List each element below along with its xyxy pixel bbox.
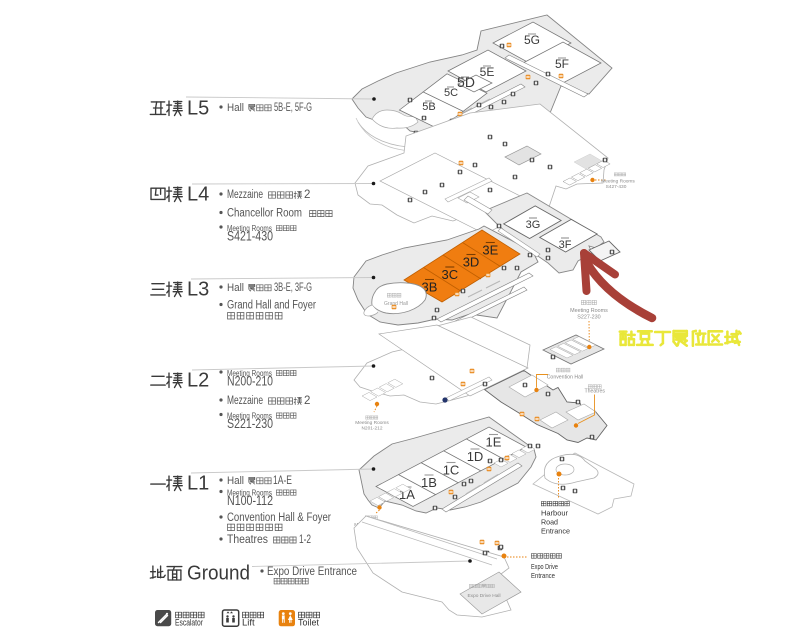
svg-text:5G: 5G bbox=[524, 33, 540, 47]
svg-text:N201-212: N201-212 bbox=[361, 426, 382, 432]
svg-text:2: 2 bbox=[304, 395, 310, 407]
svg-text:Theatres: Theatres bbox=[584, 389, 605, 395]
svg-text:Toilet: Toilet bbox=[298, 618, 319, 629]
svg-text:1C: 1C bbox=[443, 463, 460, 478]
svg-text:5B: 5B bbox=[422, 101, 435, 113]
svg-text:L5: L5 bbox=[187, 98, 209, 120]
svg-text:Road: Road bbox=[541, 518, 558, 527]
svg-text:3G: 3G bbox=[526, 219, 541, 231]
svg-text:Meeting Rooms: Meeting Rooms bbox=[355, 420, 389, 426]
svg-text:5C: 5C bbox=[444, 87, 458, 99]
svg-text:3E: 3E bbox=[482, 243, 498, 258]
svg-text:L2: L2 bbox=[187, 370, 209, 392]
svg-text:Meeting Rooms: Meeting Rooms bbox=[570, 308, 608, 314]
svg-text:1E: 1E bbox=[486, 435, 502, 450]
svg-text:1A-E: 1A-E bbox=[273, 473, 292, 487]
svg-text:Expo Drive: Expo Drive bbox=[531, 562, 558, 571]
svg-text:Hall: Hall bbox=[227, 102, 244, 114]
svg-text:Chancellor Room: Chancellor Room bbox=[227, 208, 302, 220]
svg-text:Convention Hall & Foyer: Convention Hall & Foyer bbox=[227, 512, 331, 524]
svg-text:Escalator: Escalator bbox=[175, 618, 203, 629]
svg-text:S221-230: S221-230 bbox=[227, 416, 273, 431]
svg-text:Lift: Lift bbox=[242, 618, 255, 629]
svg-text:Expo Drive Entrance: Expo Drive Entrance bbox=[267, 566, 357, 578]
svg-text:5B-E, 5F-G: 5B-E, 5F-G bbox=[274, 100, 312, 114]
svg-text:Meeting Rooms: Meeting Rooms bbox=[601, 179, 635, 185]
svg-text:N200-210: N200-210 bbox=[227, 374, 273, 389]
svg-text:Expo Drive Hall: Expo Drive Hall bbox=[467, 593, 500, 599]
svg-text:Entrance: Entrance bbox=[541, 527, 570, 536]
svg-text:S227-230: S227-230 bbox=[577, 315, 600, 321]
svg-text:L1: L1 bbox=[187, 473, 209, 495]
svg-text:Mezzaine: Mezzaine bbox=[227, 395, 263, 407]
svg-text:3F: 3F bbox=[559, 239, 572, 251]
svg-text:3C: 3C bbox=[441, 267, 458, 282]
svg-text:Mezzaine: Mezzaine bbox=[227, 189, 263, 201]
svg-text:S427-430: S427-430 bbox=[606, 184, 627, 190]
svg-text:1D: 1D bbox=[467, 449, 484, 464]
svg-text:3D: 3D bbox=[463, 255, 480, 270]
svg-text:L4: L4 bbox=[187, 184, 209, 206]
svg-text:1B: 1B bbox=[421, 475, 437, 490]
svg-text:Hall: Hall bbox=[227, 475, 244, 487]
svg-text:Grand Hall and Foyer: Grand Hall and Foyer bbox=[227, 300, 316, 312]
svg-text:S421-430: S421-430 bbox=[227, 229, 273, 244]
svg-text:Theatres: Theatres bbox=[227, 534, 268, 546]
svg-text:5F: 5F bbox=[555, 57, 569, 71]
svg-text:Hall: Hall bbox=[227, 282, 244, 294]
svg-text:N100-112: N100-112 bbox=[227, 493, 273, 508]
svg-text:2: 2 bbox=[304, 189, 310, 201]
svg-text:Harbour: Harbour bbox=[541, 509, 568, 518]
svg-text:Convention Hall: Convention Hall bbox=[547, 374, 584, 380]
svg-text:Entrance: Entrance bbox=[531, 571, 555, 580]
svg-text:5D: 5D bbox=[457, 74, 475, 90]
svg-text:L3: L3 bbox=[187, 279, 209, 301]
svg-text:5E: 5E bbox=[480, 65, 495, 79]
svg-text:3B-E, 3F-G: 3B-E, 3F-G bbox=[274, 280, 312, 294]
svg-text:1-2: 1-2 bbox=[299, 534, 311, 546]
svg-text:Ground: Ground bbox=[187, 563, 250, 585]
